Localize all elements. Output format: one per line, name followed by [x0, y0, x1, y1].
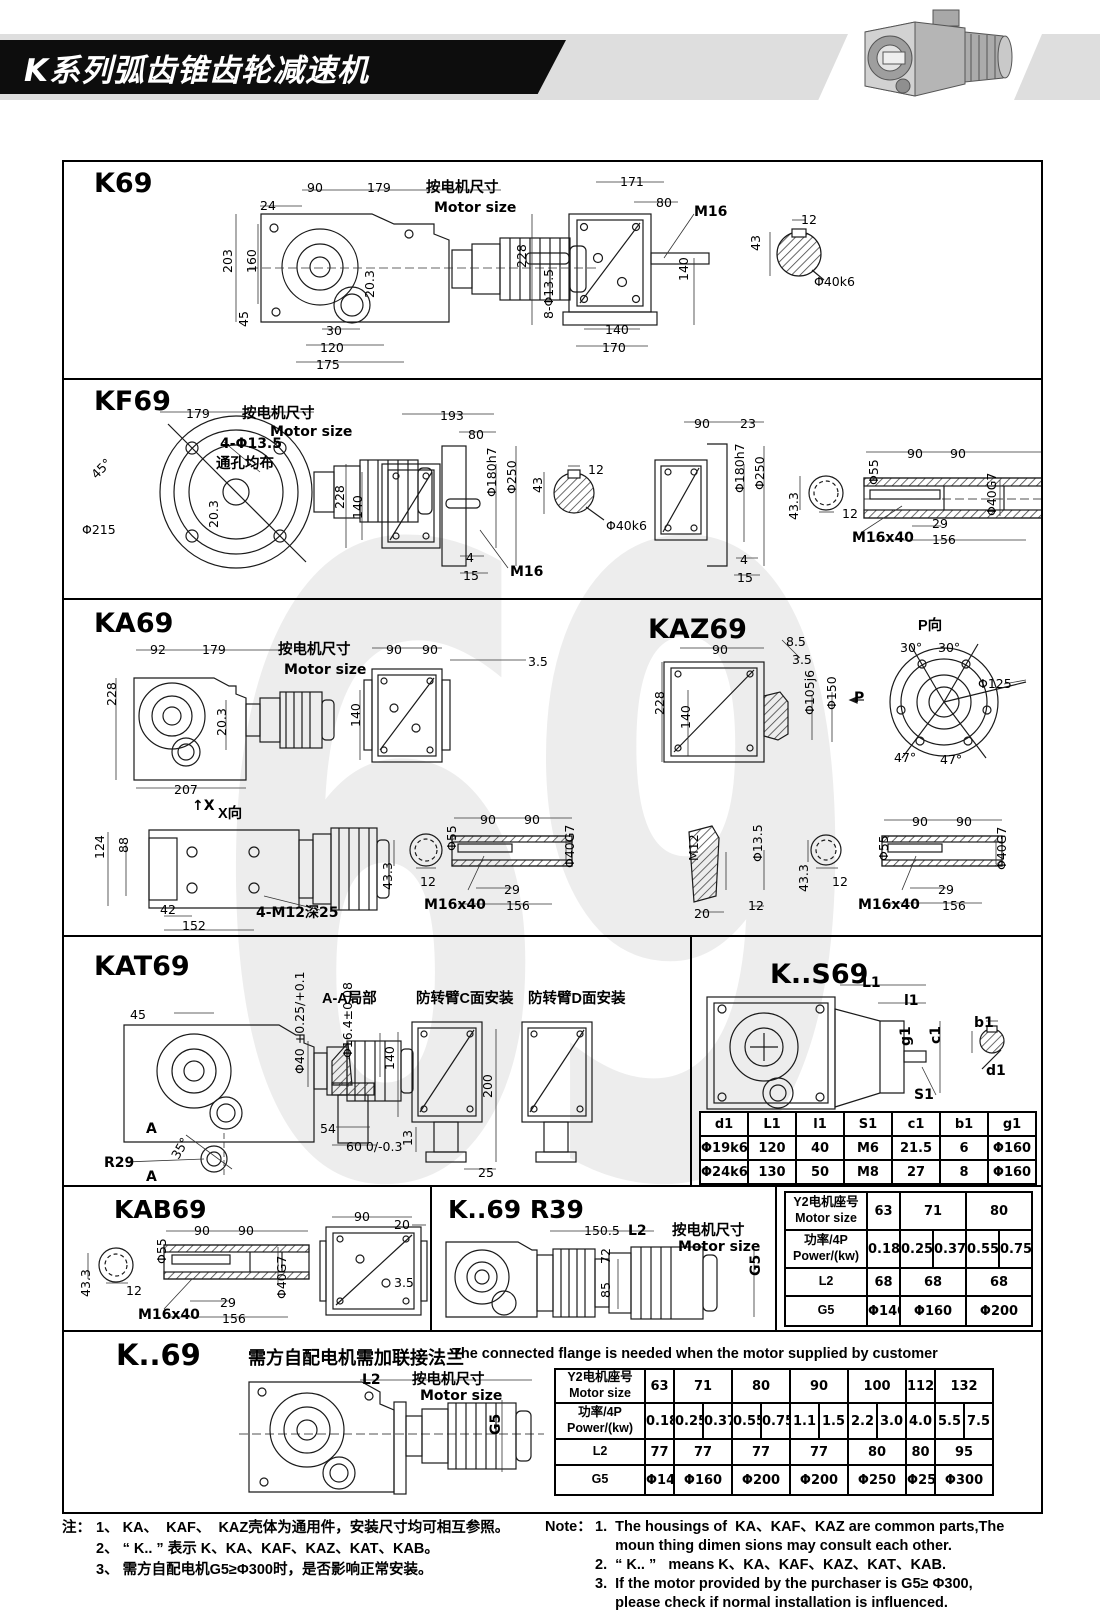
dim-label: 47° — [940, 752, 962, 767]
table-cell: 130 — [748, 1160, 796, 1184]
table-cell: 77 — [790, 1439, 848, 1465]
note-line: 1. The housings of KA、KAF、KAZ are common… — [595, 1518, 1100, 1537]
table-cell: Φ140 — [867, 1296, 900, 1326]
section-k69-bottom: K..69 需方自配电机需加联接法兰 The connected flange … — [64, 1332, 1041, 1510]
dim-label: R29 — [104, 1155, 134, 1171]
dim-label: 90 — [354, 1209, 370, 1224]
dim-label: M16 — [510, 564, 543, 580]
dim-label: L1 — [862, 975, 881, 991]
dim-label: 90 — [524, 812, 540, 827]
dim-label: 90 — [386, 642, 402, 657]
dim-label: 12 — [801, 212, 817, 227]
table-cell: 80 — [732, 1369, 790, 1403]
dim-label: 203 — [220, 249, 235, 273]
dim-label: 按电机尺寸 — [426, 176, 499, 197]
dim-label: 228 — [332, 485, 347, 509]
dim-label: 12 — [832, 874, 848, 889]
dim-label: S1 — [914, 1087, 934, 1103]
dim-label: G5 — [748, 1255, 764, 1276]
dim-label: 152 — [182, 918, 206, 933]
note-line: moun thing dimen sions may consult each … — [595, 1537, 1100, 1556]
table-cell: Φ19k6 — [700, 1136, 748, 1160]
dim-label: 160 — [244, 249, 259, 273]
table-cell: 5.5 — [935, 1403, 964, 1439]
dim-label: 8-Φ13.5 — [541, 268, 556, 318]
dim-label: M16 — [694, 204, 727, 220]
table-cell: 68 — [900, 1268, 966, 1296]
table-cell: 95 — [935, 1439, 993, 1465]
dim-label: 171 — [620, 174, 644, 189]
page-title: K系列弧齿锥齿轮减速机 — [24, 45, 369, 90]
notes-chinese: 注： 1、 KA、 KAF、 KAZ壳体为通用件，安装尺寸均可相互参照。2、 “… — [62, 1518, 576, 1581]
bottom-motor-table: Y2电机座号Motor size63718090100112132功率/4PPo… — [554, 1368, 994, 1496]
dim-label: 8.5 — [786, 634, 806, 649]
dim-label: b1 — [974, 1015, 994, 1031]
table-cell: 68 — [867, 1268, 900, 1296]
drawing-frame: K69 — [62, 160, 1043, 1514]
dim-label: L2 — [628, 1223, 647, 1239]
dim-label: 170 — [602, 340, 626, 355]
dim-label: 140 — [382, 1046, 397, 1070]
dim-label: Φ180h7 — [484, 447, 499, 497]
dim-label: 43.3 — [78, 1269, 93, 1297]
dim-label: 156 — [942, 898, 966, 913]
table-cell: 80 — [966, 1192, 1032, 1230]
dim-label: 20 — [394, 1217, 410, 1232]
table-cell: 80 — [848, 1439, 906, 1465]
dim-label: G5 — [488, 1414, 504, 1435]
dim-label: M16x40 — [138, 1307, 200, 1323]
dim-label: 47° — [894, 750, 916, 765]
section-title-ka69: KA69 — [94, 608, 173, 639]
panel-r39: K..69 R39 — [432, 1187, 777, 1332]
header-title-bar: K系列弧齿锥齿轮减速机 — [0, 40, 566, 94]
table-cell: 2.2 — [848, 1403, 877, 1439]
dim-label: 防转臂D面安装 — [528, 987, 625, 1008]
table-cell: 7.5 — [964, 1403, 993, 1439]
dim-label: 200 — [480, 1074, 495, 1098]
notes-cn-lines: 1、 KA、 KAF、 KAZ壳体为通用件，安装尺寸均可相互参照。2、 “ K.… — [96, 1518, 576, 1581]
dim-label: 30° — [938, 640, 960, 655]
dim-label: Φ16.4±0.08 — [340, 982, 355, 1058]
note-line: 2. “ K.. ” means K、KA、KAF、KAZ、KAT、KAB. — [595, 1556, 1100, 1575]
note-line: please check if normal installation is i… — [595, 1594, 1100, 1613]
table-cell: 27 — [892, 1160, 940, 1184]
table-row-label: Y2电机座号Motor size — [555, 1369, 645, 1403]
table-cell: 8 — [940, 1160, 988, 1184]
table-cell: M6 — [844, 1136, 892, 1160]
dim-label: 72 — [598, 1248, 613, 1264]
table-cell: 40 — [796, 1136, 844, 1160]
dim-label: 90 — [694, 416, 710, 431]
dim-label: 29 — [504, 882, 520, 897]
dim-label: Motor size — [420, 1388, 502, 1404]
dim-label: Φ55 — [866, 459, 881, 485]
dim-label: 29 — [220, 1295, 236, 1310]
table-cell: 132 — [935, 1369, 993, 1403]
dim-label: 3.5 — [528, 654, 548, 669]
dim-label: Φ40G7 — [562, 824, 577, 867]
dim-label: 140 — [676, 257, 691, 281]
dim-label: 90 — [912, 814, 928, 829]
dim-label: 120 — [320, 340, 344, 355]
dim-label: 按电机尺寸 — [278, 638, 351, 659]
section-ka69-kaz69: KA69 KAZ69 — [64, 600, 1041, 937]
dim-label: Φ215 — [82, 522, 116, 537]
dim-label: 23 — [740, 416, 756, 431]
dim-label: 140 — [348, 703, 363, 727]
table-cell: 0.37 — [933, 1230, 966, 1268]
table-cell: 77 — [732, 1439, 790, 1465]
dim-label: M16x40 — [424, 897, 486, 913]
dim-label: 43 — [748, 235, 763, 251]
table-cell: M8 — [844, 1160, 892, 1184]
table-cell: 120 — [748, 1136, 796, 1160]
dim-label: Φ40G7 — [274, 1255, 289, 1298]
dim-label: Φ250 — [752, 456, 767, 490]
panel-kab69: KAB69 — [64, 1187, 432, 1332]
dim-label: 43.3 — [786, 492, 801, 520]
dim-label: Motor size — [270, 424, 352, 440]
table-row-label: 功率/4PPower/(kw) — [785, 1230, 867, 1268]
panel-r39-table: Y2电机座号Motor size637180功率/4PPower/(kw)0.1… — [777, 1187, 1041, 1332]
notes-cn-label: 注： — [62, 1518, 91, 1539]
dim-label: 按电机尺寸 — [242, 402, 315, 423]
notes-english: Note： 1. The housings of KA、KAF、KAZ are … — [545, 1518, 1100, 1613]
dim-label: 156 — [222, 1311, 246, 1326]
note-line: 1、 KA、 KAF、 KAZ壳体为通用件，安装尺寸均可相互参照。 — [96, 1518, 576, 1539]
note-line: 3、 需方自配电机G5≥Φ300时，是否影响正常安装。 — [96, 1560, 576, 1581]
dim-label: 13 — [400, 1130, 415, 1146]
table-row-label: Y2电机座号Motor size — [785, 1192, 867, 1230]
dim-label: 179 — [367, 180, 391, 195]
section-title-kat69: KAT69 — [94, 951, 190, 982]
dim-label: 12 — [126, 1283, 142, 1298]
table-cell: 77 — [674, 1439, 732, 1465]
table-cell: 1.1 — [790, 1403, 819, 1439]
dim-label: 12 — [748, 898, 764, 913]
dim-label: Motor size — [434, 200, 516, 216]
table-cell: Φ250 — [848, 1465, 906, 1495]
dim-label: 193 — [440, 408, 464, 423]
dim-label: 228 — [514, 244, 529, 268]
dim-label: 按电机尺寸 — [412, 1368, 485, 1389]
table-cell: 0.18 — [867, 1230, 900, 1268]
dim-label: c1 — [928, 1026, 944, 1044]
dim-label: Φ40G7 — [994, 826, 1009, 869]
dim-label: Φ180h7 — [732, 443, 747, 493]
dim-label: 85 — [598, 1282, 613, 1298]
dim-label: Motor size — [678, 1239, 760, 1255]
dim-label: Φ40G7 — [984, 472, 999, 515]
dim-label: 150.5 — [584, 1223, 620, 1238]
table-cell: l1 — [796, 1112, 844, 1136]
table-cell: 100 — [848, 1369, 906, 1403]
dim-label: Φ125 — [978, 676, 1012, 691]
table-cell: Φ250 — [906, 1465, 935, 1495]
dim-label: 4 — [740, 552, 748, 567]
dim-label: 4-Φ13.5 — [220, 436, 282, 452]
note-line: 3. If the motor provided by the purchase… — [595, 1575, 1100, 1594]
dim-label: 29 — [938, 882, 954, 897]
table-cell: 77 — [645, 1439, 674, 1465]
dim-label: P — [854, 690, 864, 706]
dim-label: 140 — [350, 495, 365, 519]
table-cell: 0.75 — [999, 1230, 1032, 1268]
dim-label: 124 — [92, 835, 107, 859]
dim-label: 按电机尺寸 — [672, 1219, 745, 1240]
dim-label: 207 — [174, 782, 198, 797]
table-cell: 0.37 — [703, 1403, 732, 1439]
section-title-kab69: KAB69 — [114, 1195, 207, 1224]
dim-label: 防转臂C面安装 — [416, 987, 513, 1008]
table-cell: 21.5 — [892, 1136, 940, 1160]
dim-label: 90 — [238, 1223, 254, 1238]
dim-label: 20.3 — [214, 708, 229, 736]
dim-label: 228 — [652, 691, 667, 715]
dim-label: 4-M12深25 — [256, 902, 338, 922]
dim-label: Φ13.5 — [750, 824, 765, 862]
table-row-label: G5 — [785, 1296, 867, 1326]
bottom-subtitle-cn: 需方自配电机需加联接法兰 — [248, 1344, 464, 1370]
dim-label: 60 0/-0.3 — [346, 1139, 402, 1154]
dim-label: 4 — [466, 550, 474, 565]
dim-label: d1 — [986, 1063, 1006, 1079]
table-cell: 6 — [940, 1136, 988, 1160]
dim-label: Φ55 — [876, 835, 891, 861]
gearmotor-product-image — [845, 2, 1035, 102]
table-cell: g1 — [988, 1112, 1036, 1136]
kf69-drawings — [64, 380, 1041, 600]
table-cell: Φ200 — [790, 1465, 848, 1495]
dim-label: 175 — [316, 357, 340, 372]
dim-label: 24 — [260, 198, 276, 213]
dim-label: 90 — [480, 812, 496, 827]
table-cell: L1 — [748, 1112, 796, 1136]
table-cell: Φ160 — [988, 1136, 1036, 1160]
table-cell: 0.25 — [674, 1403, 703, 1439]
section-row-kab-r39: KAB69 — [64, 1187, 1041, 1332]
table-cell: 80 — [906, 1439, 935, 1465]
table-row-label: G5 — [555, 1465, 645, 1495]
dim-label: Φ40 +0.25/+0.1 — [292, 971, 307, 1074]
section-title-kf69: KF69 — [94, 386, 171, 417]
section-row-kat-ks: KAT69 — [64, 937, 1041, 1187]
dim-label: M16x40 — [852, 530, 914, 546]
table-cell: 4.0 — [906, 1403, 935, 1439]
section-k69: K69 — [64, 162, 1041, 380]
table-cell: 71 — [674, 1369, 732, 1403]
dim-label: Φ55 — [444, 825, 459, 851]
dim-label: 90 — [950, 446, 966, 461]
dim-label: M12 — [686, 834, 701, 861]
dim-label: 3.5 — [394, 1275, 414, 1290]
table-cell: Φ300 — [935, 1465, 993, 1495]
table-cell: Φ160 — [988, 1160, 1036, 1184]
data-table: Y2电机座号Motor size637180功率/4PPower/(kw)0.1… — [784, 1191, 1033, 1327]
panel-ks69: K..S69 — [692, 937, 1041, 1187]
dim-label: Φ150 — [824, 676, 839, 710]
dim-label: 179 — [186, 406, 210, 421]
dim-label: 15 — [737, 570, 753, 585]
dim-label: Motor size — [284, 662, 366, 678]
dim-label: 54 — [320, 1121, 336, 1136]
dim-label: 179 — [202, 642, 226, 657]
dim-label: 45 — [236, 311, 251, 327]
dim-label: 29 — [932, 516, 948, 531]
data-table: d1L1l1S1c1b1g1Φ19k612040M621.56Φ160Φ24k6… — [699, 1111, 1037, 1185]
bottom-subtitle-en: The connected flange is needed when the … — [452, 1346, 938, 1362]
table-cell: c1 — [892, 1112, 940, 1136]
dim-label: 156 — [932, 532, 956, 547]
table-cell: 0.25 — [900, 1230, 933, 1268]
table-cell: S1 — [844, 1112, 892, 1136]
table-cell: Φ160 — [674, 1465, 732, 1495]
table-row-label: L2 — [785, 1268, 867, 1296]
section-title-k69-bottom: K..69 — [116, 1338, 201, 1372]
dim-label: 3.5 — [792, 652, 812, 667]
dim-label: 90 — [307, 180, 323, 195]
table-cell: 68 — [966, 1268, 1032, 1296]
table-cell: 71 — [900, 1192, 966, 1230]
dim-label: Φ250 — [504, 460, 519, 494]
table-cell: b1 — [940, 1112, 988, 1136]
dim-label: 92 — [150, 642, 166, 657]
dim-label: Φ40k6 — [606, 518, 647, 533]
dim-label: L2 — [362, 1372, 381, 1388]
section-kf69: KF69 — [64, 380, 1041, 600]
section-title-kaz69: KAZ69 — [648, 614, 747, 645]
dim-label: P向 — [918, 614, 942, 635]
table-cell: 3.0 — [877, 1403, 906, 1439]
table-cell: d1 — [700, 1112, 748, 1136]
dim-label: g1 — [898, 1026, 914, 1046]
dim-label: Φ105j6 — [802, 670, 817, 715]
table-cell: 0.18 — [645, 1403, 674, 1439]
dim-label: 15 — [463, 568, 479, 583]
dim-label: 20.3 — [362, 270, 377, 298]
dim-label: 30° — [900, 640, 922, 655]
dim-label: 43.3 — [380, 862, 395, 890]
table-cell: 63 — [645, 1369, 674, 1403]
dim-label: 80 — [656, 195, 672, 210]
dim-label: 156 — [506, 898, 530, 913]
table-cell: 112 — [906, 1369, 935, 1403]
table-cell: 0.75 — [761, 1403, 790, 1439]
dim-label: 140 — [678, 705, 693, 729]
panel-kat69: KAT69 — [64, 937, 692, 1187]
table-row-label: L2 — [555, 1439, 645, 1465]
table-cell: 50 — [796, 1160, 844, 1184]
dim-label: 90 — [422, 642, 438, 657]
dim-label: ↑X — [192, 798, 215, 814]
dim-label: A — [146, 1121, 157, 1137]
section-title-ks69: K..S69 — [770, 959, 868, 990]
table-cell: 0.55 — [966, 1230, 999, 1268]
dim-label: 90 — [956, 814, 972, 829]
dim-label: 80 — [468, 427, 484, 442]
table-cell: Φ160 — [900, 1296, 966, 1326]
dim-label: 42 — [160, 902, 176, 917]
data-table: Y2电机座号Motor size63718090100112132功率/4PPo… — [554, 1368, 994, 1496]
dim-label: X向 — [218, 802, 242, 823]
dim-label: 20 — [694, 906, 710, 921]
table-cell: 90 — [790, 1369, 848, 1403]
dim-label: 228 — [104, 682, 119, 706]
dim-label: 43.3 — [796, 864, 811, 892]
dim-label: 12 — [588, 462, 604, 477]
dim-label: 90 — [712, 642, 728, 657]
table-cell: 0.55 — [732, 1403, 761, 1439]
dim-label: 90 — [194, 1223, 210, 1238]
table-cell: 1.5 — [819, 1403, 848, 1439]
dim-label: l1 — [904, 993, 919, 1009]
notes-en-label: Note： — [545, 1518, 592, 1537]
dim-label: 30 — [326, 323, 342, 338]
dim-label: 90 — [907, 446, 923, 461]
dim-label: 45 — [130, 1007, 146, 1022]
dim-label: 25 — [478, 1165, 494, 1180]
section-title-k69: K69 — [94, 168, 153, 199]
dim-label: 12 — [842, 506, 858, 521]
ks69-table: d1L1l1S1c1b1g1Φ19k612040M621.56Φ160Φ24k6… — [699, 1111, 1037, 1185]
section-title-r39: K..69 R39 — [448, 1195, 584, 1224]
table-cell: Φ200 — [732, 1465, 790, 1495]
r39-table: Y2电机座号Motor size637180功率/4PPower/(kw)0.1… — [784, 1191, 1033, 1327]
note-line: 2、 “ K.. ” 表示 K、KA、KAF、KAZ、KAT、KAB。 — [96, 1539, 576, 1560]
dim-label: 12 — [420, 874, 436, 889]
dim-label: 通孔均布 — [216, 452, 274, 473]
dim-label: Φ40k6 — [814, 274, 855, 289]
dim-label: M16x40 — [858, 897, 920, 913]
table-cell: Φ200 — [966, 1296, 1032, 1326]
table-cell: Φ24k6 — [700, 1160, 748, 1184]
table-row-label: 功率/4PPower/(kw) — [555, 1403, 645, 1439]
dim-label: Φ55 — [154, 1238, 169, 1264]
dim-label: 20.3 — [206, 500, 221, 528]
table-cell: 63 — [867, 1192, 900, 1230]
dim-label: 43 — [530, 477, 545, 493]
dim-label: 140 — [605, 322, 629, 337]
dim-label: 88 — [116, 837, 131, 853]
dim-label: A — [146, 1169, 157, 1185]
table-cell: Φ140 — [645, 1465, 674, 1495]
notes-en-lines: 1. The housings of KA、KAF、KAZ are common… — [595, 1518, 1100, 1613]
